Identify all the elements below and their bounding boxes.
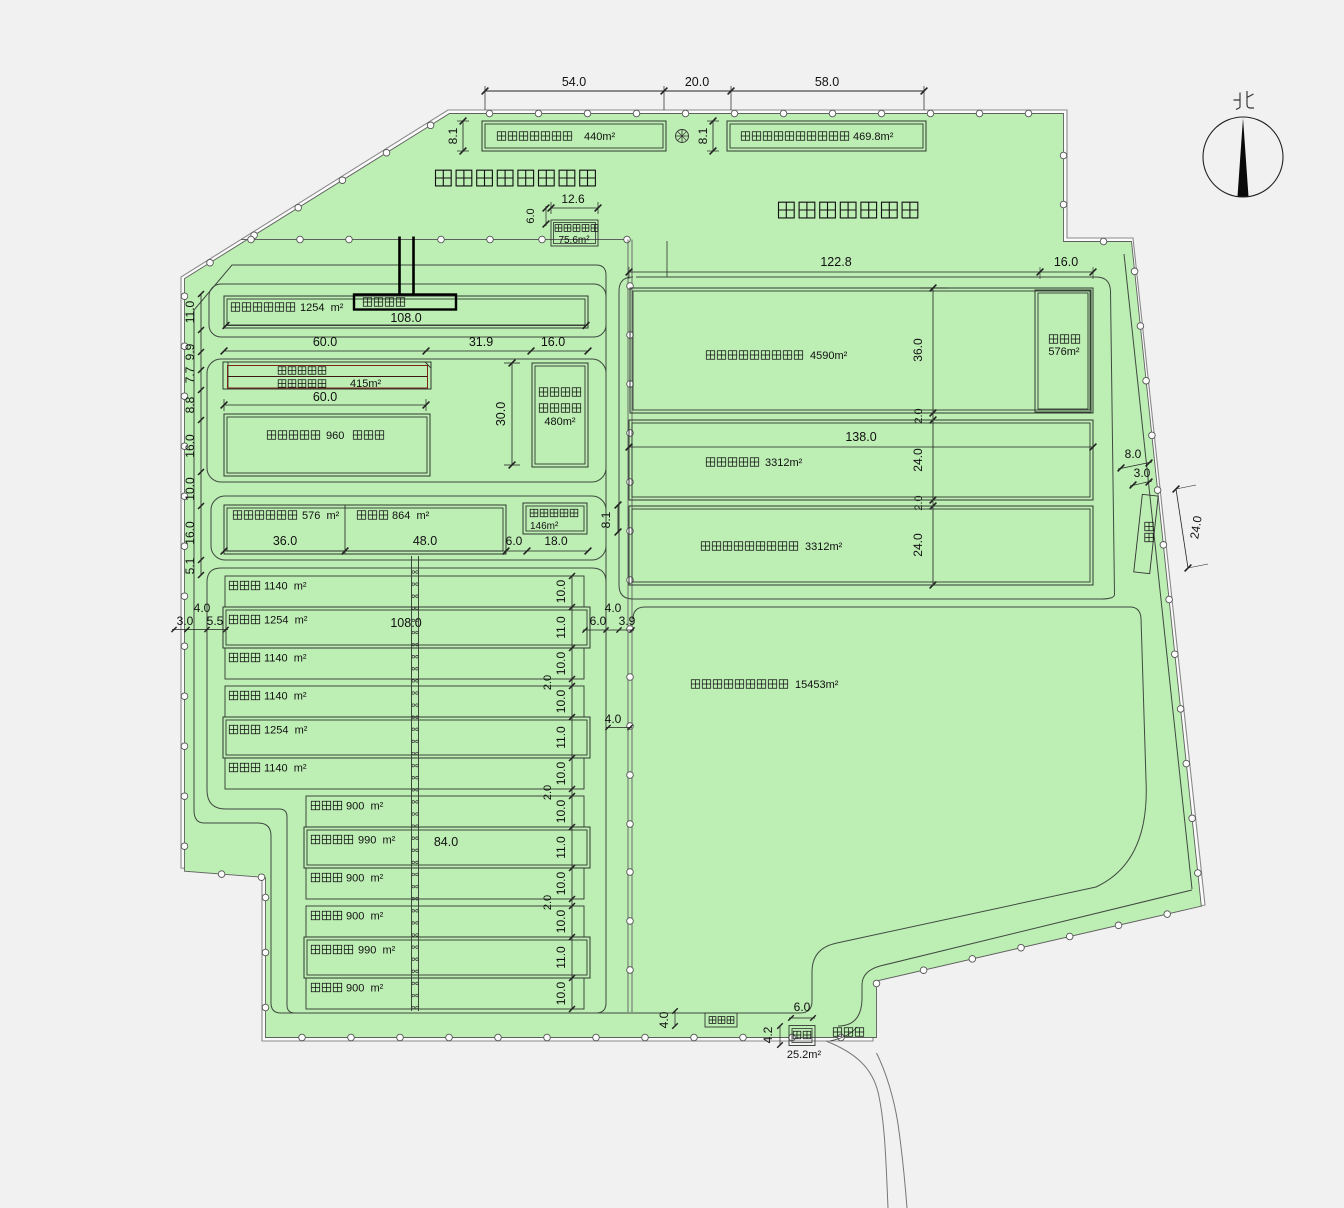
svg-text:576m²: 576m²: [1048, 346, 1080, 358]
svg-text:4.0: 4.0: [605, 712, 622, 726]
svg-text:10.0: 10.0: [183, 477, 197, 501]
svg-text:10.0: 10.0: [554, 799, 568, 823]
svg-text:440m²: 440m²: [584, 131, 616, 143]
svg-text:1140 m²: 1140 m²: [264, 691, 307, 703]
svg-text:11.0: 11.0: [554, 616, 568, 639]
svg-text:36.0: 36.0: [273, 534, 297, 548]
svg-text:900 m²: 900 m²: [346, 801, 384, 813]
svg-text:138.0: 138.0: [845, 430, 876, 444]
svg-text:10.0: 10.0: [554, 689, 568, 713]
svg-text:108.0: 108.0: [390, 311, 421, 325]
svg-text:6.0: 6.0: [590, 614, 607, 628]
svg-text:990 m²: 990 m²: [358, 835, 396, 847]
svg-text:8.0: 8.0: [1125, 447, 1142, 461]
svg-text:7.7: 7.7: [183, 366, 197, 383]
svg-text:122.8: 122.8: [820, 255, 851, 269]
svg-text:18.0: 18.0: [544, 534, 568, 548]
svg-text:4.0: 4.0: [657, 1011, 671, 1028]
svg-text:2.0: 2.0: [913, 495, 925, 510]
svg-text:11.0: 11.0: [554, 946, 568, 969]
svg-text:1140 m²: 1140 m²: [264, 763, 307, 775]
svg-text:60.0: 60.0: [313, 335, 337, 349]
svg-text:900 m²: 900 m²: [346, 911, 384, 923]
svg-text:900 m²: 900 m²: [346, 983, 384, 995]
svg-text:960: 960: [326, 430, 344, 442]
svg-text:4.0: 4.0: [605, 601, 622, 615]
svg-text:16.0: 16.0: [541, 335, 565, 349]
svg-text:48.0: 48.0: [413, 534, 437, 548]
svg-text:3.0: 3.0: [177, 614, 194, 628]
svg-text:2.0: 2.0: [542, 785, 554, 800]
svg-text:3312m²: 3312m²: [805, 541, 843, 553]
svg-text:10.0: 10.0: [554, 761, 568, 785]
svg-text:15453m²: 15453m²: [795, 679, 839, 691]
svg-text:10.0: 10.0: [554, 871, 568, 895]
svg-text:2.0: 2.0: [913, 408, 925, 423]
svg-text:2.0: 2.0: [542, 895, 554, 910]
svg-text:1140 m²: 1140 m²: [264, 581, 307, 593]
svg-text:6.0: 6.0: [525, 208, 537, 223]
svg-text:146m²: 146m²: [530, 521, 559, 532]
svg-text:16.0: 16.0: [183, 521, 197, 545]
svg-text:864 m²: 864 m²: [392, 510, 430, 522]
svg-text:10.0: 10.0: [554, 909, 568, 933]
svg-text:1254 m²: 1254 m²: [264, 615, 308, 627]
svg-text:6.0: 6.0: [506, 534, 523, 548]
svg-text:20.0: 20.0: [685, 75, 709, 89]
svg-text:8.8: 8.8: [183, 396, 197, 413]
svg-text:4.0: 4.0: [194, 601, 211, 615]
svg-text:4590m²: 4590m²: [810, 350, 848, 362]
svg-text:25.2m²: 25.2m²: [787, 1049, 822, 1061]
svg-text:5.1: 5.1: [183, 557, 197, 574]
svg-text:8.1: 8.1: [696, 127, 710, 144]
svg-text:16.0: 16.0: [1054, 255, 1078, 269]
svg-text:54.0: 54.0: [562, 75, 586, 89]
svg-text:8.1: 8.1: [446, 127, 460, 144]
svg-text:84.0: 84.0: [434, 835, 458, 849]
svg-text:2.0: 2.0: [542, 675, 554, 690]
svg-text:10.0: 10.0: [554, 651, 568, 675]
svg-text:30.0: 30.0: [494, 402, 508, 426]
svg-text:9.9: 9.9: [183, 343, 197, 360]
svg-text:75.6m²: 75.6m²: [558, 235, 590, 246]
svg-text:108.0: 108.0: [390, 616, 421, 630]
svg-text:24.0: 24.0: [911, 533, 925, 557]
svg-text:469.8m²: 469.8m²: [853, 131, 894, 143]
svg-text:1140 m²: 1140 m²: [264, 653, 307, 665]
svg-text:58.0: 58.0: [815, 75, 839, 89]
svg-text:10.0: 10.0: [554, 981, 568, 1005]
svg-text:480m²: 480m²: [544, 416, 576, 428]
svg-text:5.5: 5.5: [207, 614, 224, 628]
svg-text:1254 m²: 1254 m²: [300, 302, 344, 314]
svg-text:900 m²: 900 m²: [346, 873, 384, 885]
svg-text:1254 m²: 1254 m²: [264, 725, 308, 737]
svg-text:36.0: 36.0: [911, 338, 925, 362]
svg-text:4.2: 4.2: [761, 1026, 775, 1043]
svg-text:12.6: 12.6: [561, 192, 585, 206]
svg-text:16.0: 16.0: [183, 434, 197, 458]
svg-text:6.0: 6.0: [794, 1000, 811, 1014]
svg-text:3.0: 3.0: [1134, 466, 1151, 480]
svg-text:990 m²: 990 m²: [358, 945, 396, 957]
svg-text:24.0: 24.0: [911, 448, 925, 472]
svg-text:11.0: 11.0: [183, 300, 197, 323]
svg-text:8.1: 8.1: [599, 511, 613, 528]
svg-text:60.0: 60.0: [313, 390, 337, 404]
svg-text:11.0: 11.0: [554, 726, 568, 749]
svg-text:3312m²: 3312m²: [765, 457, 803, 469]
svg-text:3.9: 3.9: [619, 614, 636, 628]
svg-text:11.0: 11.0: [554, 836, 568, 859]
svg-text:576 m²: 576 m²: [302, 510, 340, 522]
svg-text:415m²: 415m²: [350, 378, 382, 390]
svg-text:31.9: 31.9: [469, 335, 493, 349]
svg-text:10.0: 10.0: [554, 579, 568, 603]
